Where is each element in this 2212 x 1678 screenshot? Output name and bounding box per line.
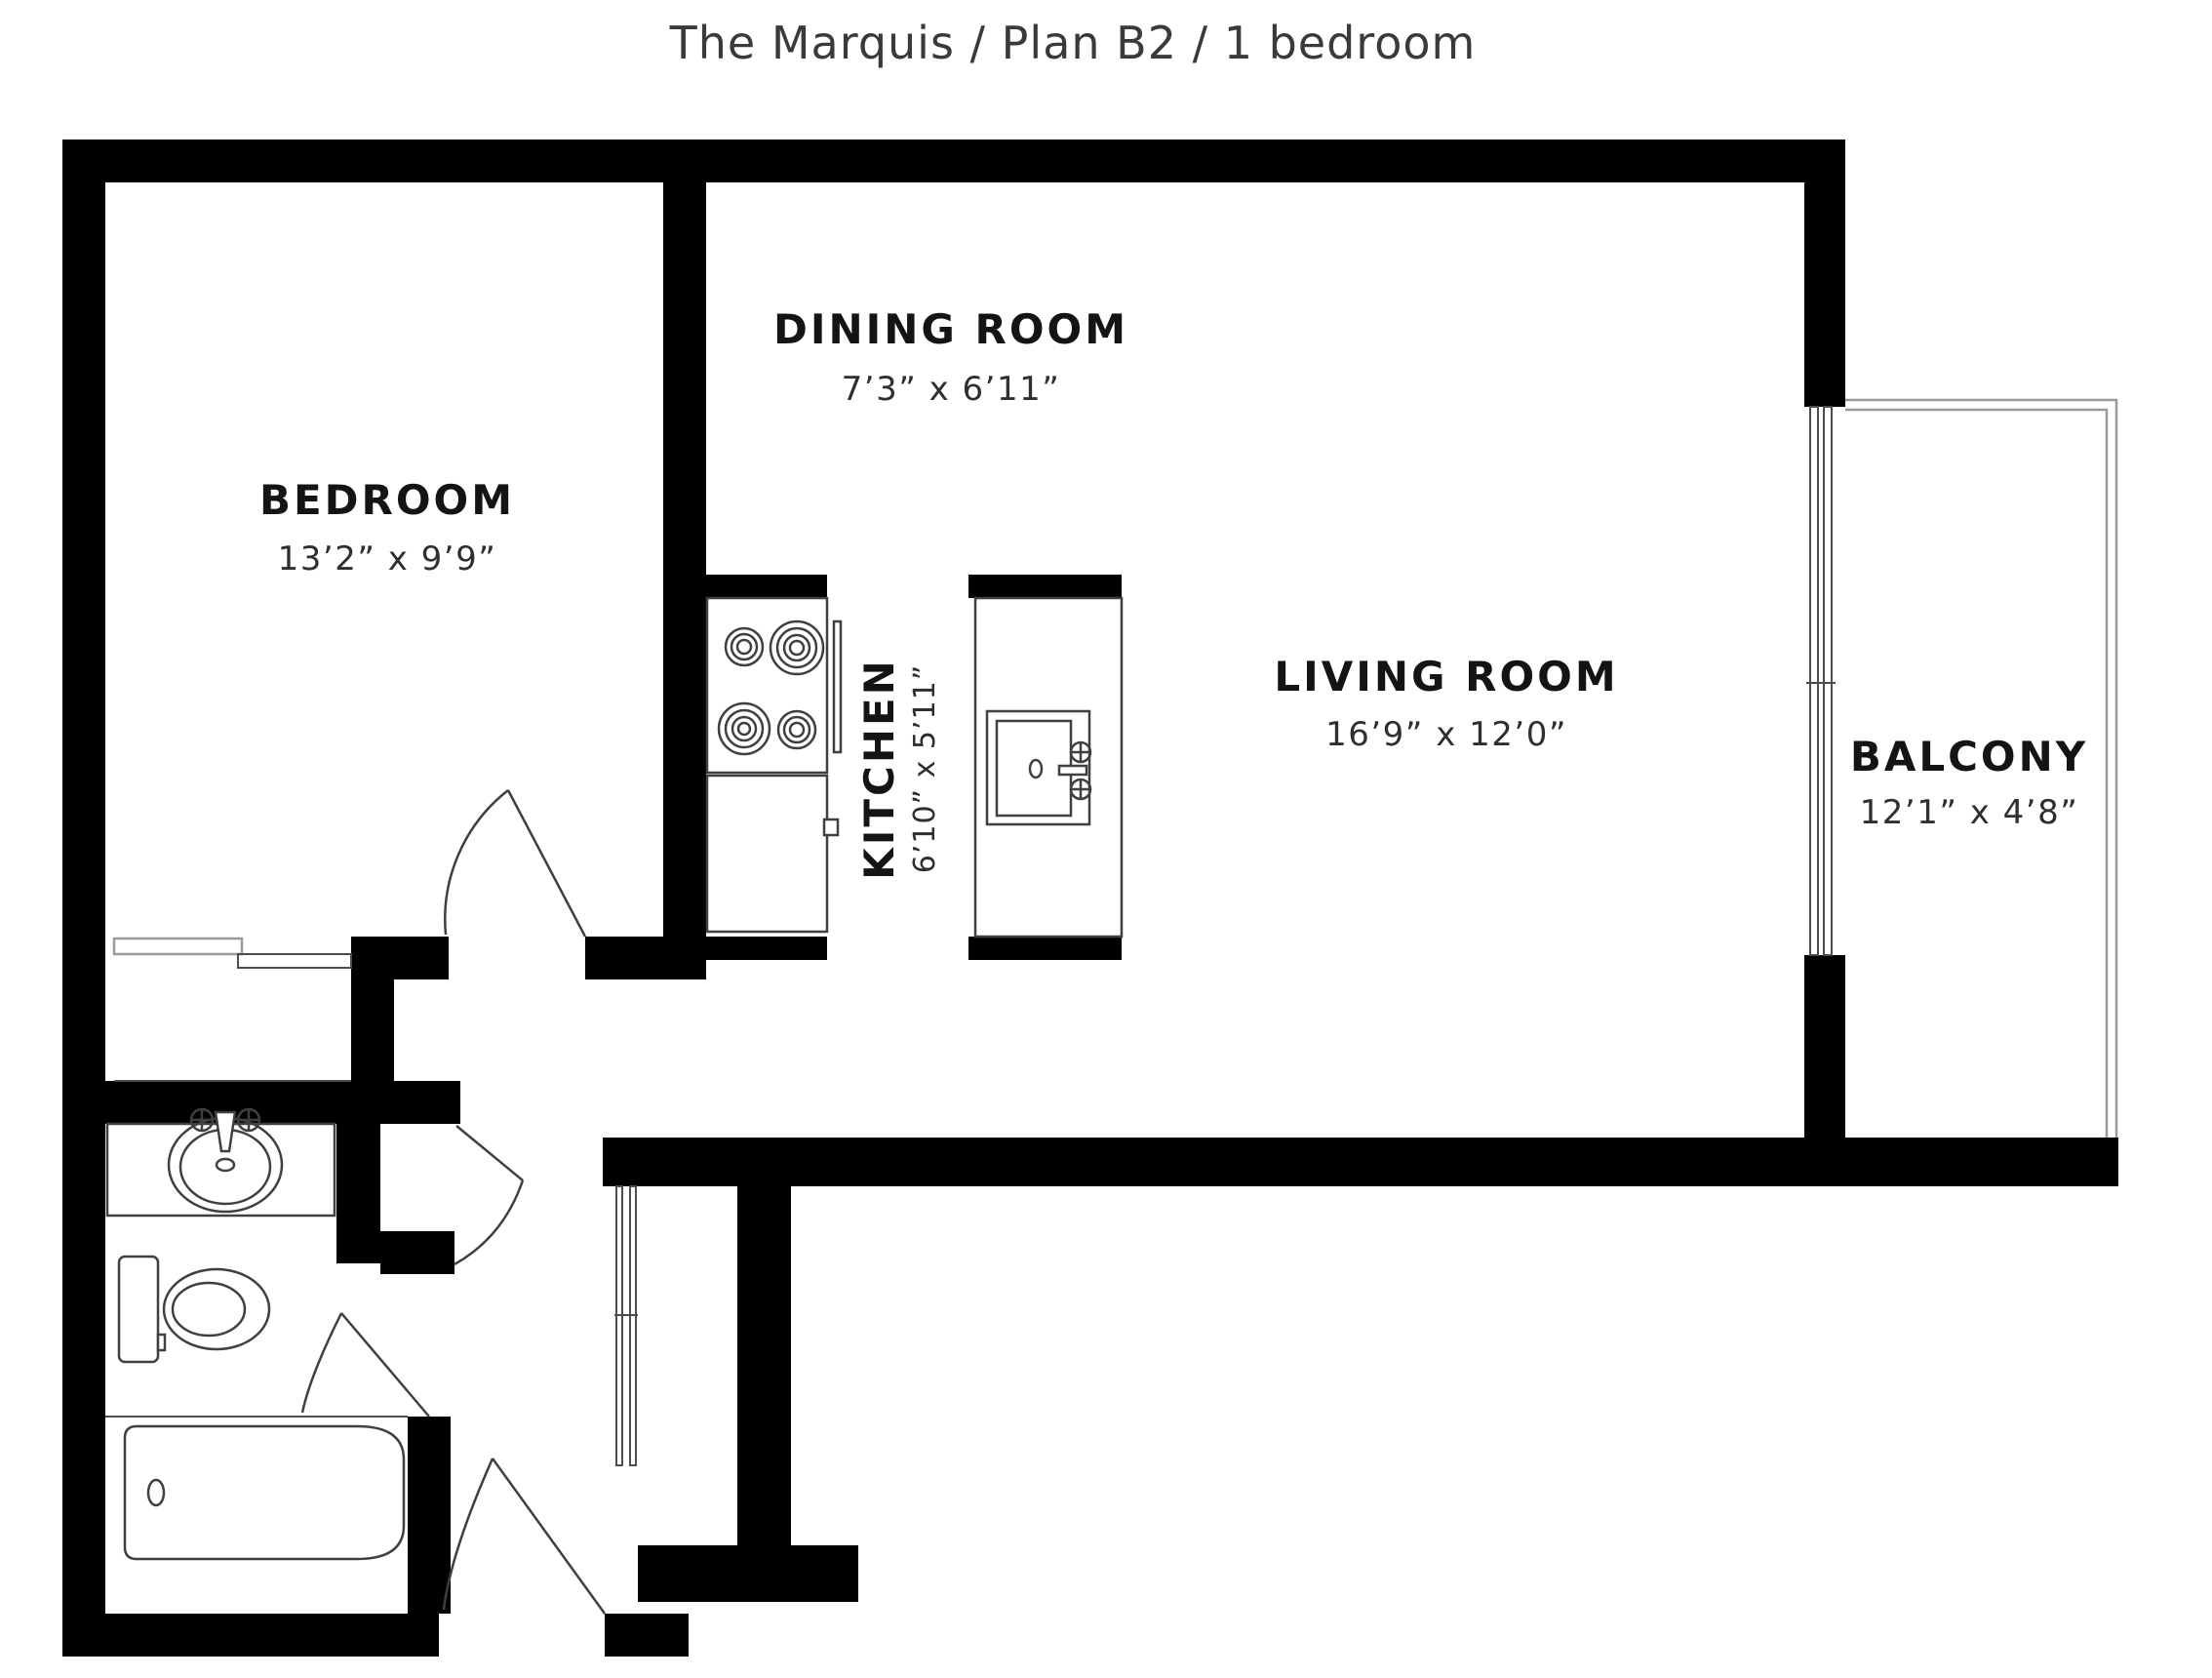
hall-closet-door	[614, 1186, 638, 1465]
bedroom-door-arc	[445, 790, 508, 935]
wall-nook-foot	[380, 1231, 454, 1274]
counter-handle	[824, 819, 838, 835]
bedroom-label: BEDROOM	[259, 476, 515, 524]
balcony-label: BALCONY	[1850, 733, 2088, 780]
sink-drain	[217, 1159, 234, 1171]
wall-bottom-left	[62, 1614, 439, 1657]
bathtub-icon	[105, 1417, 408, 1559]
wall-island-top-stub	[968, 575, 1122, 598]
plan-title: The Marquis / Plan B2 / 1 bedroom	[669, 17, 1477, 69]
floor-plan-page: The Marquis / Plan B2 / 1 bedroom	[0, 0, 2212, 1678]
dining-label: DINING ROOM	[773, 305, 1128, 353]
linen-door-leaf	[341, 1313, 429, 1417]
bedroom-dims: 13’2” x 9’9”	[278, 539, 497, 579]
sink-spout	[216, 1112, 235, 1151]
closet-door-panel	[238, 954, 351, 968]
wall-bedroom-bottom-b	[585, 937, 706, 979]
wall-corridor	[638, 1545, 858, 1602]
closet-door-panel	[114, 939, 242, 954]
wall-living-right-upper	[1804, 182, 1845, 407]
wall-bedroom-bottom-a	[394, 937, 449, 979]
kitchen-island-sink-icon	[975, 598, 1122, 937]
oven-handle	[834, 621, 841, 752]
toilet-tank	[119, 1257, 158, 1362]
sliding-door-icon	[1806, 407, 1836, 955]
bedroom-door-leaf	[508, 790, 585, 937]
bathroom-door-leaf	[456, 1126, 523, 1180]
wall-hall-closet	[737, 1186, 791, 1547]
wall-entry-stub	[605, 1614, 689, 1657]
wall-stove-top-stub	[706, 575, 827, 598]
kitchen-dims: 6’10” x 5’11”	[908, 664, 942, 874]
toilet-flush	[158, 1335, 165, 1350]
dining-dims: 7’3” x 6’11”	[842, 370, 1061, 409]
wall-top	[62, 140, 1845, 182]
wall-bathroom-top	[105, 1081, 460, 1124]
wall-bottom-main	[603, 1138, 2118, 1186]
wall-island-bottom-stub	[968, 937, 1122, 960]
faucet-bar	[1059, 766, 1086, 775]
bathroom-door-arc	[454, 1180, 523, 1264]
stove-icon	[707, 598, 841, 773]
wall-stove-bottom-stub	[706, 937, 827, 960]
kitchen-counter	[707, 776, 838, 932]
toilet-bowl	[164, 1269, 269, 1349]
wall-tub-right	[408, 1417, 451, 1614]
wall-bedroom-kitchen	[663, 140, 706, 979]
bathroom-sink-icon	[107, 1109, 335, 1216]
wall-left	[62, 140, 105, 1657]
kitchen-label: KITCHEN	[855, 658, 903, 880]
entry-door-arc	[444, 1458, 493, 1610]
wall-toilet-nook	[336, 1124, 380, 1263]
toilet-icon	[119, 1257, 269, 1362]
balcony-dims: 12’1” x 4’8”	[1860, 793, 2079, 832]
living-dims: 16’9” x 12’0”	[1325, 715, 1567, 754]
living-label: LIVING ROOM	[1274, 653, 1618, 700]
floor-plan-canvas: The Marquis / Plan B2 / 1 bedroom	[0, 0, 2212, 1678]
entry-door-leaf	[493, 1458, 605, 1614]
bedroom-closet	[114, 939, 351, 1081]
linen-door-arc	[302, 1313, 341, 1413]
